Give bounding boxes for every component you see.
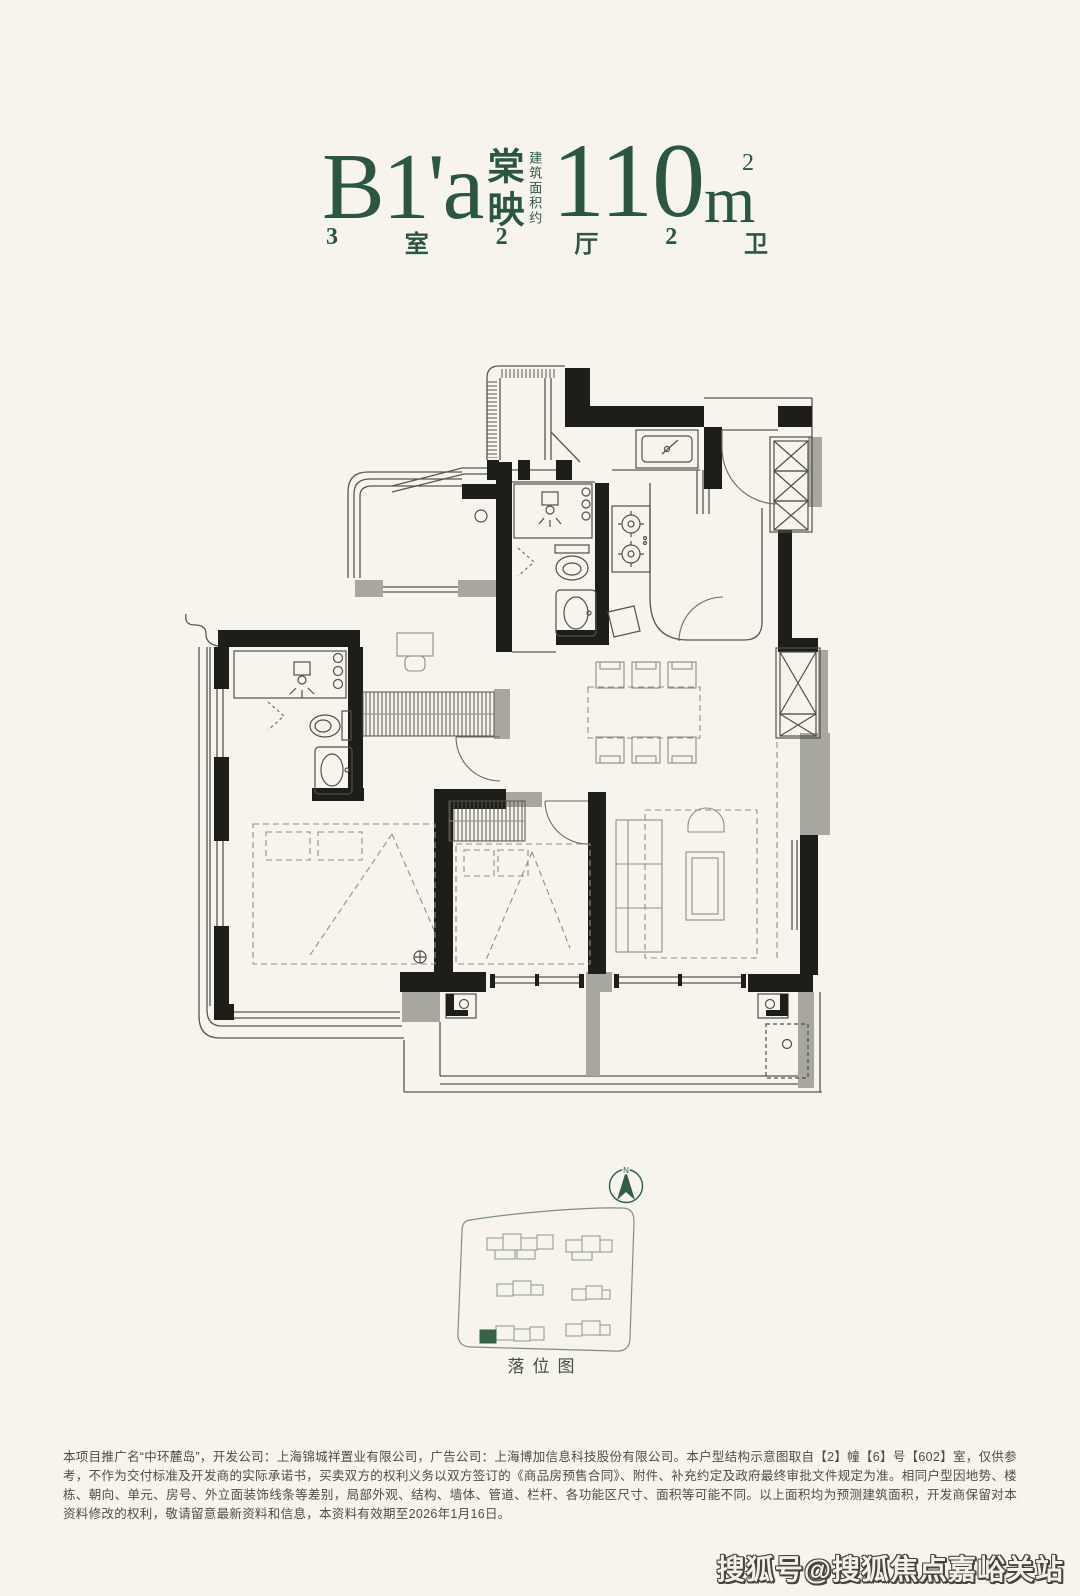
- disclaimer-text: 本项目推广名“中环麓岛”，开发公司：上海锦城祥置业有限公司，广告公司：上海博加信…: [63, 1448, 1017, 1524]
- building-clusters: [480, 1234, 612, 1343]
- floor-plan-drawing: [160, 330, 860, 1120]
- site-plan-drawing: N: [430, 1148, 660, 1360]
- site-plan-label: 落位图: [430, 1352, 660, 1377]
- bed-master: [253, 824, 435, 964]
- site-plan: N: [430, 1148, 660, 1360]
- mop-pool-icon: [608, 606, 640, 637]
- floor-plan: [160, 330, 860, 1120]
- highlighted-building: [480, 1330, 496, 1343]
- watermark-text: 搜狐号@搜狐焦点嘉峪关站: [717, 1548, 1064, 1588]
- floorplan-page: B1'a 棠映 建筑面积约 110 m 2 3 室 2 厅 2 卫: [0, 0, 1080, 1596]
- shower-area: [234, 651, 346, 698]
- dining-chairs: [596, 662, 696, 763]
- flex-room-drain-icon: [475, 510, 487, 522]
- fixtures-layer: [234, 430, 820, 1078]
- north-label: N: [623, 1166, 629, 1175]
- unit-code: B1'a: [322, 140, 482, 234]
- area-label-vertical: 建筑面积约: [527, 151, 541, 226]
- north-arrow-icon: N: [610, 1166, 643, 1203]
- shower-head-icon: [294, 662, 310, 675]
- toilet-tank-2: [555, 545, 589, 553]
- area-unit-superscript: 2: [742, 150, 754, 177]
- walls-layer: [214, 368, 818, 1020]
- shower-head-icon-2: [542, 492, 558, 505]
- spec-baths-count: 2: [665, 224, 677, 259]
- spec-baths-label: 卫: [744, 224, 768, 259]
- area-value: 110: [552, 128, 704, 234]
- spec-halls-label: 厅: [574, 224, 598, 259]
- spec-rooms-count: 3: [326, 224, 338, 259]
- master-door-arc: [456, 737, 500, 781]
- kitchen-door-arc: [679, 597, 723, 641]
- spec-halls-count: 2: [496, 224, 508, 259]
- bath2-folding-door: [518, 548, 534, 576]
- bed-2: [456, 844, 590, 964]
- spec-rooms-label: 室: [405, 224, 429, 259]
- unit-name-vertical: 棠映: [483, 147, 520, 233]
- armchair: [688, 808, 724, 832]
- bedroom-door-arc: [545, 801, 588, 844]
- duct-shaft: [770, 437, 812, 532]
- dining-table: [588, 687, 700, 738]
- sofa: [616, 820, 662, 952]
- toilet-icon-2: [556, 556, 588, 580]
- layout-spec-row: 3 室 2 厅 2 卫: [326, 224, 768, 259]
- bath-folding-door: [268, 702, 284, 730]
